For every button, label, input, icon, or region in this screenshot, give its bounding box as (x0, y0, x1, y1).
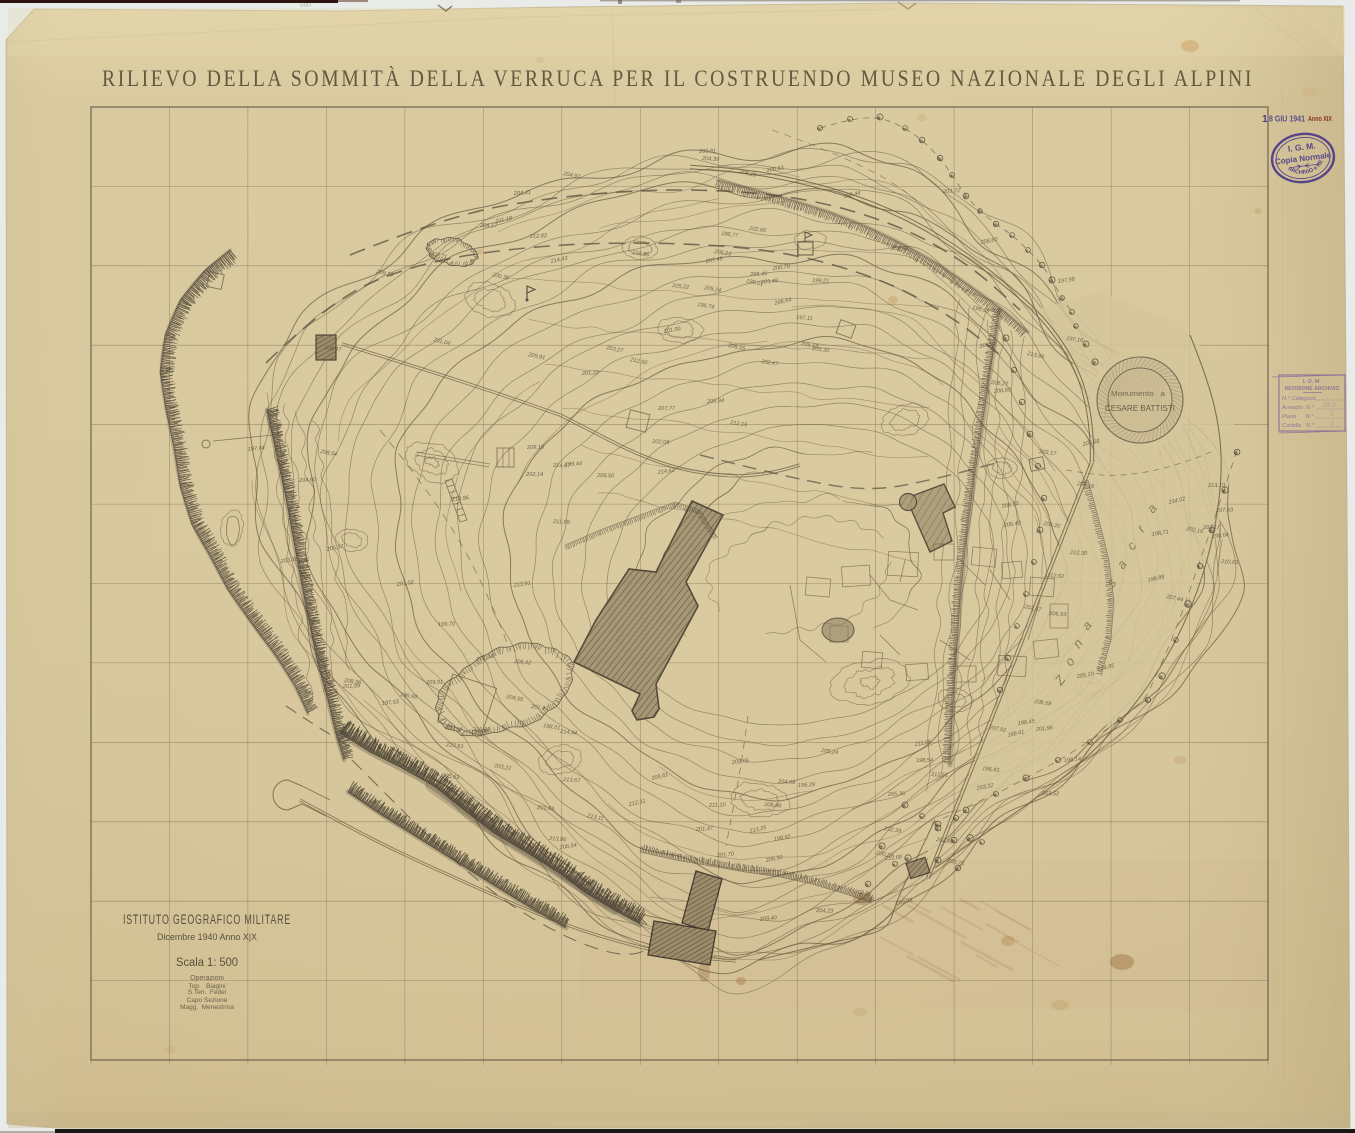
svg-text:ISTITUTO GEOGRAFICO MILITARE: ISTITUTO GEOGRAFICO MILITARE (123, 912, 291, 927)
svg-text:Operazioni: Operazioni (190, 975, 224, 982)
svg-text:8 GIU 1941: 8 GIU 1941 (1269, 115, 1305, 124)
svg-text:202,08: 202,08 (651, 439, 670, 446)
svg-text:209,16: 209,16 (526, 445, 545, 451)
svg-text:1: 1 (1262, 113, 1268, 125)
svg-text:200,81: 200,81 (698, 148, 716, 155)
svg-text:202,38: 202,38 (856, 897, 875, 904)
svg-text:197,11: 197,11 (796, 315, 813, 322)
svg-text:10-2: 10-2 (1322, 402, 1336, 409)
svg-text:201,17: 201,17 (1202, 525, 1221, 531)
svg-text:204,41: 204,41 (513, 190, 531, 197)
svg-text:204,23: 204,23 (815, 908, 834, 915)
svg-text:203,52: 203,52 (1041, 791, 1060, 797)
svg-text:204,60: 204,60 (298, 477, 317, 484)
svg-text:204,68: 204,68 (777, 779, 796, 786)
svg-text:S.Ten. Fedel: S.Ten. Fedel (188, 989, 227, 996)
svg-text:Anno XIX: Anno XIX (1308, 116, 1332, 123)
svg-text:211,10: 211,10 (708, 802, 727, 809)
svg-text:199,00: 199,00 (471, 729, 489, 736)
svg-text:205,35: 205,35 (887, 791, 906, 798)
svg-text:209,50: 209,50 (596, 473, 615, 479)
svg-text:I. O. M.: I. O. M. (1303, 379, 1322, 385)
svg-text:207,63: 207,63 (1215, 507, 1234, 514)
svg-text:212,62: 212,62 (1046, 573, 1065, 580)
svg-text:Cartella N.°: Cartella N.° (1282, 423, 1315, 429)
svg-text:203,72: 203,72 (942, 188, 961, 195)
svg-text:207,77: 207,77 (657, 406, 676, 412)
svg-text:212,82: 212,82 (529, 233, 548, 240)
svg-text:202,99: 202,99 (890, 246, 908, 253)
svg-text:212,51: 212,51 (930, 772, 948, 779)
svg-text:199,21: 199,21 (812, 278, 829, 285)
svg-text:Armadio N.°: Armadio N.° (1281, 405, 1315, 411)
svg-text:205,94: 205,94 (706, 398, 724, 405)
svg-text:209,91: 209,91 (425, 680, 443, 686)
svg-text:211,69: 211,69 (552, 519, 570, 526)
svg-text:REVISIONE ARCHIVIO: REVISIONE ARCHIVIO (1284, 386, 1339, 392)
svg-text:201,64: 201,64 (536, 805, 554, 812)
svg-text:Piano N.°: Piano N.° (1282, 414, 1314, 420)
svg-text:500: 500 (300, 2, 311, 9)
svg-text:204,39: 204,39 (701, 156, 719, 163)
svg-text:201,22: 201,22 (581, 370, 600, 377)
svg-text:198,54: 198,54 (916, 758, 933, 764)
svg-text:2: 2 (1329, 421, 1334, 428)
svg-text:N.° Categoria: N.° Categoria (1282, 396, 1316, 402)
svg-text:Scala 1: 500: Scala 1: 500 (176, 957, 238, 969)
svg-text:213,10: 213,10 (1207, 483, 1226, 489)
svg-text:Dicembre 1940 Anno X|X: Dicembre 1940 Anno X|X (157, 932, 258, 943)
svg-text:208,49: 208,49 (749, 271, 767, 278)
svg-text:196,29: 196,29 (798, 782, 815, 789)
svg-text:199,70: 199,70 (438, 621, 456, 628)
svg-text:CESARE BATTISTI: CESARE BATTISTI (1105, 403, 1175, 413)
svg-text:Monumento a: Monumento a (1111, 391, 1165, 398)
svg-text:199,44: 199,44 (565, 461, 582, 468)
svg-text:202,14: 202,14 (525, 472, 543, 478)
svg-text:212,30: 212,30 (1069, 550, 1088, 557)
svg-text:Capo Sezione: Capo Sezione (187, 997, 228, 1004)
svg-text:1: 1 (1330, 411, 1334, 418)
svg-text:RILIEVO DELLA SOMMITÀ DELLA VE: RILIEVO DELLA SOMMITÀ DELLA VERRUCA PER … (102, 66, 1254, 91)
svg-text:Magg. Menestrina: Magg. Menestrina (180, 1004, 234, 1011)
